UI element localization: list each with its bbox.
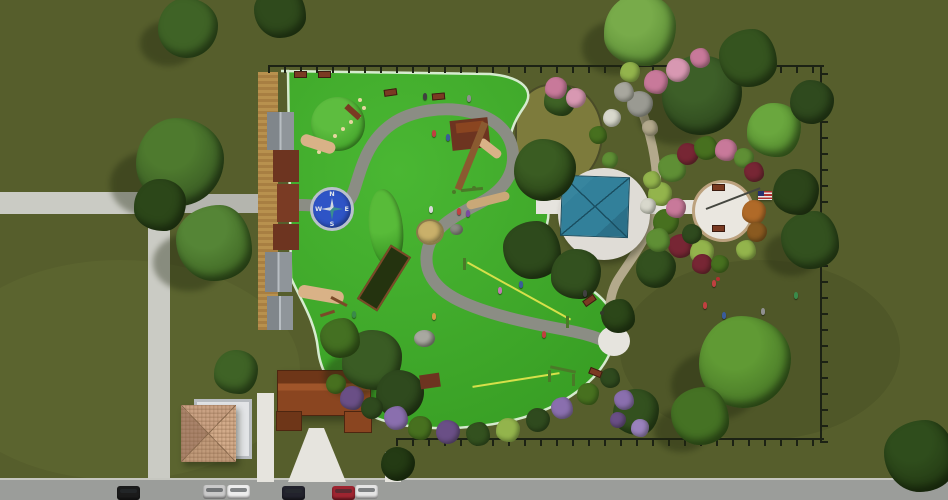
gravel-path <box>610 114 657 343</box>
playfield-surface <box>281 71 616 428</box>
fence-top <box>268 65 824 73</box>
boardwalk <box>258 72 278 330</box>
fence-bottom <box>396 438 824 446</box>
playfield-and-paths <box>0 0 948 500</box>
park-aerial-rendering: N E S W <box>0 0 948 500</box>
fence-right <box>820 65 828 443</box>
